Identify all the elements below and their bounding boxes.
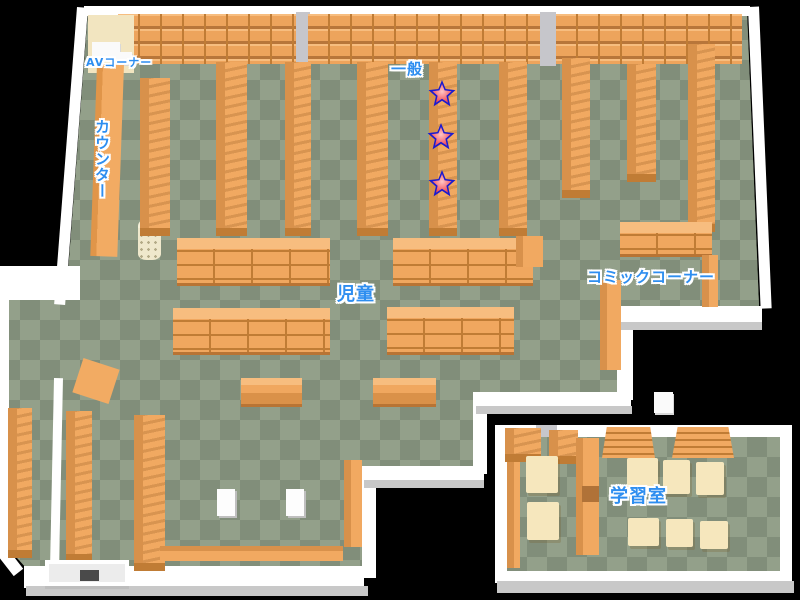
area-label-counter: カウンター xyxy=(92,119,113,199)
library-floor-map: AVコーナー カウンター 一般 児童 コミックコーナー 学習室 xyxy=(0,0,800,600)
area-label-children: 児童 xyxy=(337,280,375,306)
area-label-study-room: 学習室 xyxy=(610,482,667,508)
star-marker-icon xyxy=(427,123,455,151)
star-marker-fill xyxy=(432,84,452,104)
marker-layer xyxy=(0,0,800,600)
star-marker-icon xyxy=(428,80,456,108)
area-label-comic-corner: コミックコーナー xyxy=(587,266,715,287)
star-marker-fill xyxy=(432,174,452,194)
star-marker-icon xyxy=(428,170,456,198)
area-label-general: 一般 xyxy=(391,58,423,79)
star-marker-fill xyxy=(431,127,451,147)
area-label-av-corner: AVコーナー xyxy=(86,54,152,70)
